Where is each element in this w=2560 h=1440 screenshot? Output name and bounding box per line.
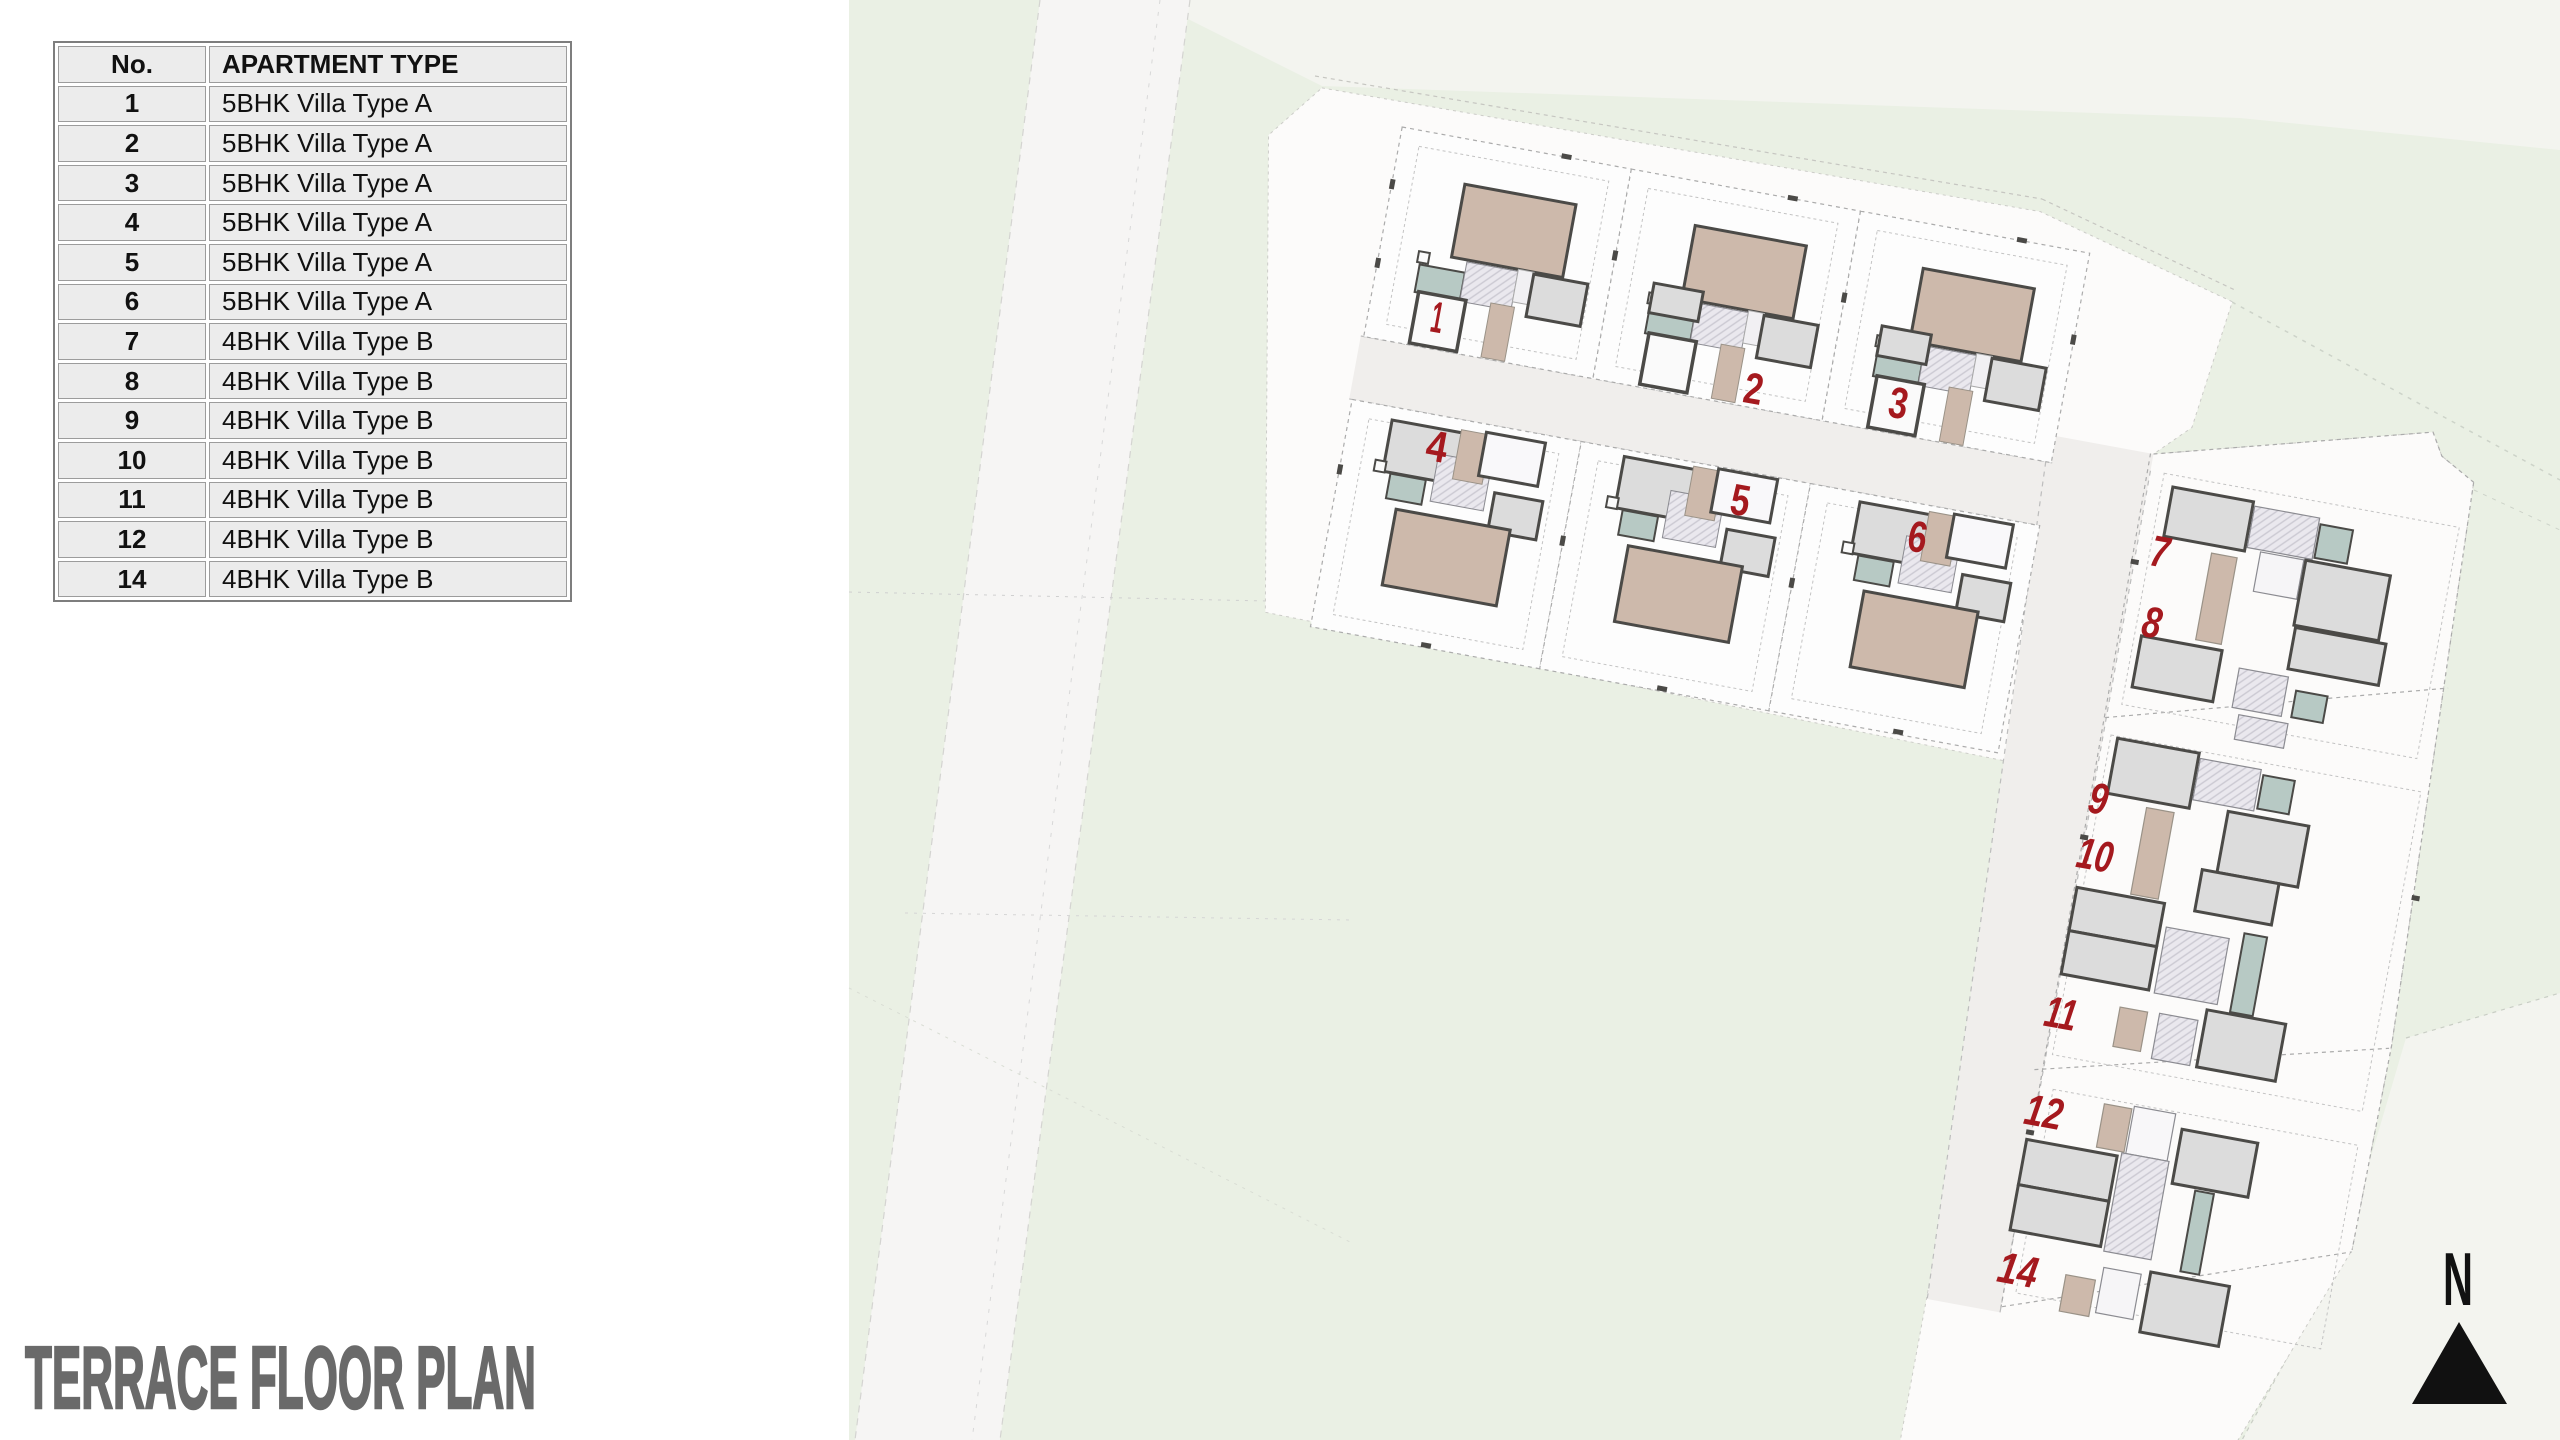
svg-text:N: N	[2443, 1237, 2473, 1321]
